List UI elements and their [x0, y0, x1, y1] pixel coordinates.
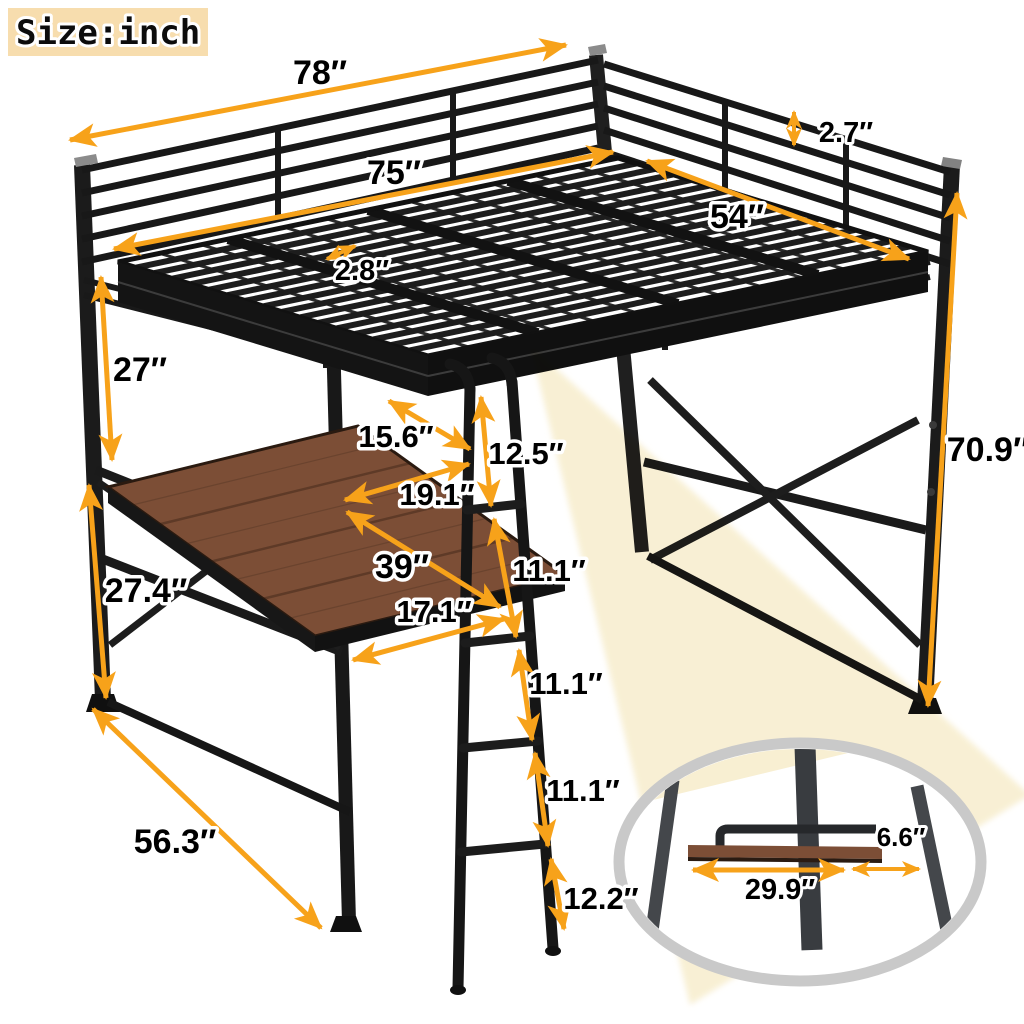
- loft-bed-dimension-diagram: 29.9″ 6.6″ 78″ 75″ 54″ 2.7″ 2.8″ 27″ 27.…: [0, 0, 1024, 1024]
- inset-shelf: [688, 845, 882, 859]
- dim-label-ladder-bottom-segment: 12.2″: [563, 881, 638, 916]
- dim-label-inner-length: 75″: [367, 154, 421, 192]
- dim-label-ladder-segment-4: 11.1″: [546, 773, 620, 808]
- badge-label: Size:inch: [16, 13, 200, 53]
- dim-label-shelf-length: 29.9″: [745, 874, 815, 906]
- dim-label-desk-front-width: 17.1″: [396, 594, 471, 629]
- ladder-foot: [450, 985, 466, 995]
- diagram-stage: 29.9″ 6.6″ 78″ 75″ 54″ 2.7″ 2.8″ 27″ 27.…: [0, 0, 1024, 1024]
- dim-label-desk-side-depth: 15.6″: [358, 419, 433, 454]
- dim-label-shelf-depth: 6.6″: [877, 822, 926, 852]
- dim-label-overall-height: 70.9″: [947, 431, 1024, 469]
- dim-label-desk-mid-depth: 19.1″: [399, 477, 474, 512]
- dim-label-base-diagonal: 56.3″: [134, 823, 216, 861]
- ladder-rung: [467, 504, 521, 510]
- ladder-rung: [463, 741, 538, 748]
- post-cap-back: [588, 44, 607, 56]
- ladder-rung: [465, 636, 530, 643]
- dim-label-bed-width: 54″: [710, 198, 764, 236]
- dim-label-desk-height: 27.4″: [105, 572, 187, 610]
- dim-label-rail-gap: 2.7″: [819, 117, 873, 149]
- dim-label-ladder-segment-2: 11.1″: [512, 553, 586, 588]
- dim-label-ladder-top-segment: 12.5″: [488, 436, 563, 471]
- dim-label-ladder-segment-3: 11.1″: [529, 666, 603, 701]
- size-unit-badge: Size:inch: [8, 8, 208, 56]
- ladder-rung: [461, 844, 545, 852]
- dim-arrow-base-diagonal: [93, 709, 321, 928]
- dim-label-desk-length: 39″: [375, 548, 429, 586]
- bolt: [927, 488, 935, 496]
- dim-label-slat-gap: 2.8″: [335, 255, 389, 287]
- bolt: [929, 421, 937, 429]
- dim-label-top-length: 78″: [293, 54, 347, 92]
- dim-label-under-bed-clearance: 27″: [113, 351, 167, 389]
- guardrail-bar: [604, 64, 950, 172]
- post-foot-front: [330, 916, 362, 932]
- ladder-foot: [545, 946, 561, 956]
